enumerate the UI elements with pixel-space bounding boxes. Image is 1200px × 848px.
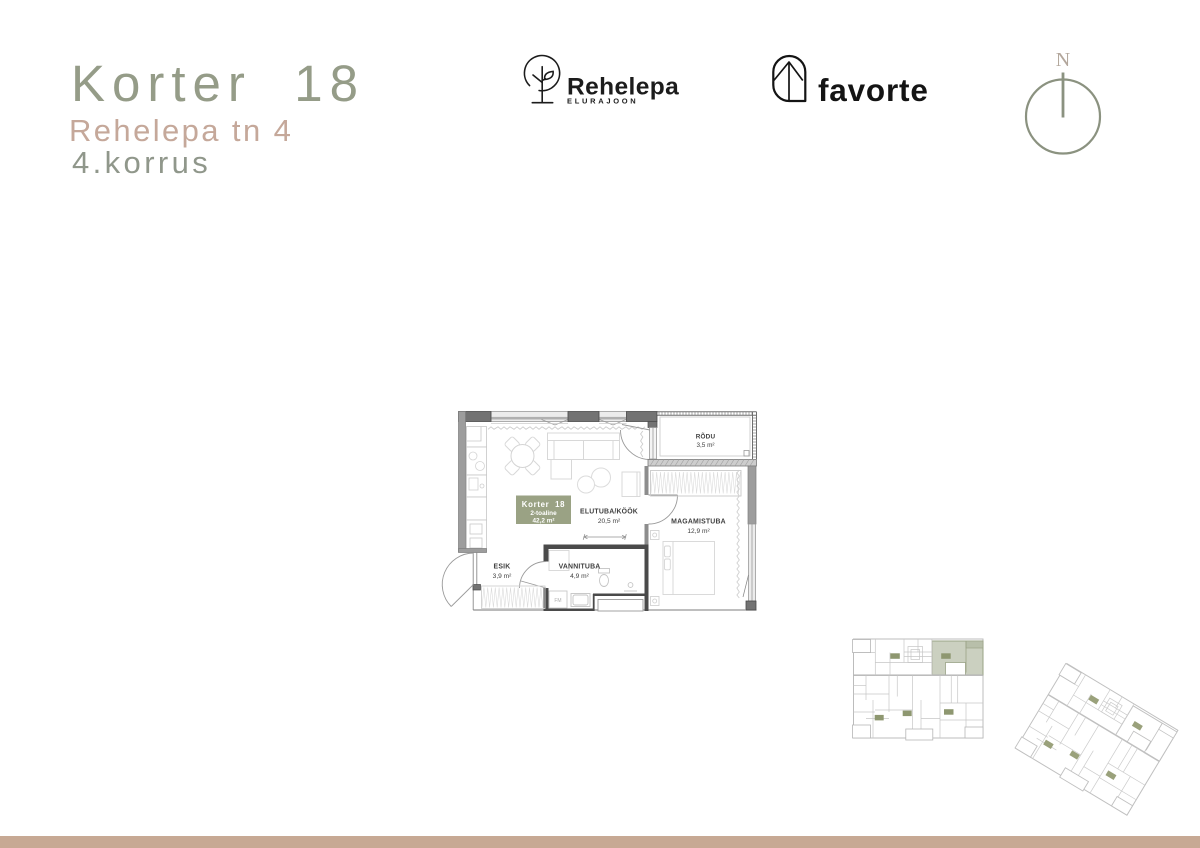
svg-text:20,5 m²: 20,5 m² xyxy=(598,518,621,525)
svg-text:FM: FM xyxy=(554,598,561,604)
svg-text:ESIK: ESIK xyxy=(494,564,511,571)
svg-text:RÕDU: RÕDU xyxy=(696,432,716,441)
svg-text:ELUTUBA/KÖÖK: ELUTUBA/KÖÖK xyxy=(580,507,638,516)
svg-text:12,9 m²: 12,9 m² xyxy=(687,528,710,535)
svg-text:2-toaline: 2-toaline xyxy=(530,510,557,517)
svg-text:N: N xyxy=(1056,49,1070,71)
svg-text:4,9 m²: 4,9 m² xyxy=(570,573,589,580)
svg-text:42,2 m²: 42,2 m² xyxy=(532,517,554,524)
svg-text:3,9 m²: 3,9 m² xyxy=(493,573,512,580)
svg-text:MAGAMISTUBA: MAGAMISTUBA xyxy=(671,519,726,526)
svg-text:VANNITUBA: VANNITUBA xyxy=(559,564,601,571)
svg-text:3,5 m²: 3,5 m² xyxy=(696,442,714,449)
svg-text:Korter 18: Korter 18 xyxy=(522,500,565,509)
svg-text:favorte: favorte xyxy=(818,72,929,108)
svg-text:ELURAJOON: ELURAJOON xyxy=(567,97,638,106)
